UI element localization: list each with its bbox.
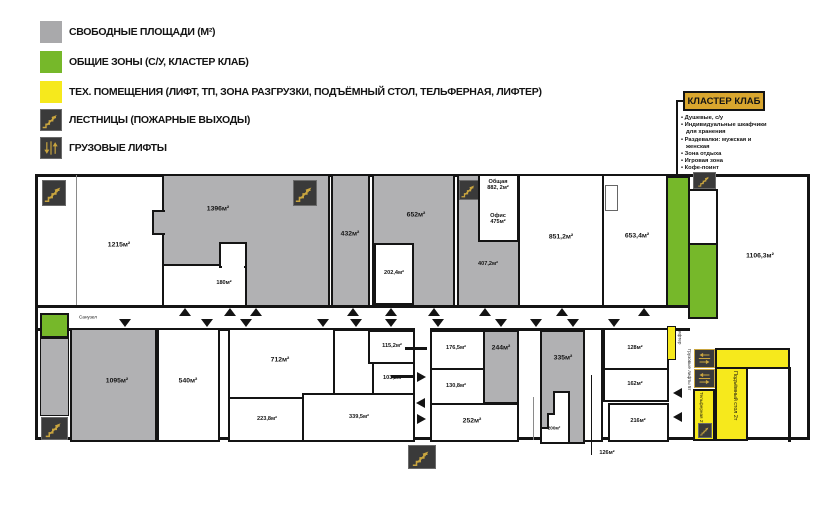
room-label-851: 851,2м² [549,234,573,241]
room-label-200: 200м² [548,426,561,431]
room-712 [228,328,335,399]
corridor-arrow-down-icon [201,319,213,327]
stairs-icon [40,109,62,131]
room-label-180: 180м² [216,280,231,286]
legend-label: ЛЕСТНИЦЫ (ПОЖАРНЫЕ ВЫХОДЫ) [69,114,250,126]
room-label-obshaya: Общая 882, 2м² [487,179,509,191]
corridor-arrow-down-icon [567,319,579,327]
stairs-icon [459,180,479,200]
legend-label: ТЕХ. ПОМЕЩЕНИЯ (ЛИФТ, ТП, ЗОНА РАЗГРУЗКИ… [69,86,542,98]
room-label-176: 176,5м² [446,345,466,351]
legend-label: ГРУЗОВЫЕ ЛИФТЫ [69,142,167,154]
corridor-arrow-down-icon [240,319,252,327]
room-label-1396: 1396м² [207,206,229,213]
room-1095 [70,328,157,442]
room-label-335: 335м² [554,355,573,362]
room-180 [162,264,247,307]
green-swatch-icon [40,51,62,73]
wall [76,175,77,306]
lifter-zone [667,326,676,360]
leader-line [591,375,592,455]
room-label-126: 126м² [599,450,614,456]
corridor-arrow-up-icon [428,308,440,316]
freight-lift-icon [694,349,715,368]
niche [605,185,618,211]
room-851 [518,174,605,307]
corridor-arrow-down-icon [608,319,620,327]
stairs-icon [698,423,712,438]
door-tick [391,375,413,378]
room-label-223: 223,8м² [257,416,277,422]
corridor-arrow-right-icon [417,414,426,424]
room-label-244: 244м² [492,345,511,352]
stairs-icon [408,445,436,469]
room-label-128: 128м² [627,345,642,351]
room-small-top-right [688,189,718,245]
freight-lift-label: Грузовые лифты 5т [681,349,692,395]
room-label-252: 252м² [463,418,482,425]
room-label-339: 339,5м² [349,414,369,420]
room-label-office: Офис 475м² [490,213,506,225]
thin-partition [533,397,534,440]
room-label-1095: 1095м² [106,378,128,385]
corridor-arrow-left-icon [673,412,682,422]
corridor-arrow-up-icon [638,308,650,316]
room-200 [540,391,570,444]
corridor-arrow-left-icon [416,398,425,408]
corridor-arrow-right-icon [417,372,426,382]
obshaya-line2: 882, 2м² [487,185,509,191]
legend-item: ЛЕСТНИЦЫ (ПОЖАРНЫЕ ВЫХОДЫ) [40,109,250,131]
gray-strip [40,338,69,416]
freight-lift-icon [40,137,62,159]
corridor-arrow-down-icon [530,319,542,327]
cluster-club-callout: КЛАСТЕР КЛАБ [683,91,765,111]
freight-lift-icon [694,369,715,388]
corridor-arrow-down-icon [350,319,362,327]
floor-plan-page: СВОБОДНЫЕ ПЛОЩАДИ (М²) ОБЩИЕ ЗОНЫ (С/У, … [0,0,820,511]
legend-item: ТЕХ. ПОМЕЩЕНИЯ (ЛИФТ, ТП, ЗОНА РАЗГРУЗКИ… [40,81,542,103]
sanuzel-zone [40,313,69,338]
telfer-label: Тельферная 2т [695,392,704,426]
plan-area: 1215м² 1396м² 180м² 432м² 652м² 202,4м² … [35,172,820,502]
corridor-wall [35,305,688,308]
room-540 [157,328,220,442]
stairs-icon [693,172,716,189]
legend-item: ГРУЗОВЫЕ ЛИФТЫ [40,137,167,159]
room-label-712: 712м² [271,357,290,364]
legend-label: ОБЩИЕ ЗОНЫ (С/У, КЛАСТЕР КЛАБ) [69,56,249,68]
cluster-club-zone-2 [688,243,718,319]
wall-patch [222,260,244,270]
wall-patch [160,212,166,233]
corridor-arrow-down-icon [317,319,329,327]
room-label-162: 162м² [627,381,642,387]
cluster-club-zone [666,176,690,308]
legend-item: СВОБОДНЫЕ ПЛОЩАДИ (М²) [40,21,215,43]
corridor-arrow-up-icon [556,308,568,316]
room-label-115: 115,2м² [382,343,402,349]
office-line2: 475м² [490,219,505,225]
cluster-club-item: Индивидуальные шкафчики для хранения [681,122,776,136]
corridor-arrow-up-icon [224,308,236,316]
room-label-1106: 1106,3м² [746,253,774,260]
door-tick [405,347,427,350]
room-label-407: 407,2м² [478,261,498,267]
room-label-130: 130,8м² [446,383,466,389]
corridor-arrow-down-icon [385,319,397,327]
stairs-icon [41,417,68,440]
room-432 [331,174,370,307]
corridor-arrow-up-icon [385,308,397,316]
corridor-arrow-up-icon [250,308,262,316]
room-label-540: 540м² [179,378,198,385]
gray-swatch-icon [40,21,62,43]
room-244 [483,330,519,404]
stairs-icon [293,180,317,206]
corridor-arrow-up-icon [479,308,491,316]
wall-patch [717,350,746,367]
cluster-club-item: Раздевалки: мужская и женская [681,137,776,151]
lift-table-label: Подъёмный стол 2т [723,371,737,439]
wall [788,367,791,442]
yellow-swatch-icon [40,81,62,103]
corridor-arrow-down-icon [119,319,131,327]
room-label-652: 652м² [407,212,426,219]
legend-item: ОБЩИЕ ЗОНЫ (С/У, КЛАСТЕР КЛАБ) [40,51,249,73]
room-label-432: 432м² [341,231,360,238]
corridor-arrow-up-icon [347,308,359,316]
stairs-icon [42,180,66,206]
cluster-club-item: Зона отдыха [681,151,776,158]
room-126 [583,328,603,442]
room-label-216: 216м² [630,418,645,424]
corridor-arrow-down-icon [432,319,444,327]
corridor-label: Санузел [79,315,97,320]
corridor-arrow-down-icon [495,319,507,327]
room-label-1215: 1215м² [108,242,130,249]
legend-label: СВОБОДНЫЕ ПЛОЩАДИ (М²) [69,26,215,38]
room-label-202: 202,4м² [384,270,404,276]
room-label-653: 653,4м² [625,233,649,240]
cluster-club-list: Душевые, с/у Индивидуальные шкафчики для… [681,115,776,173]
corridor-arrow-up-icon [179,308,191,316]
